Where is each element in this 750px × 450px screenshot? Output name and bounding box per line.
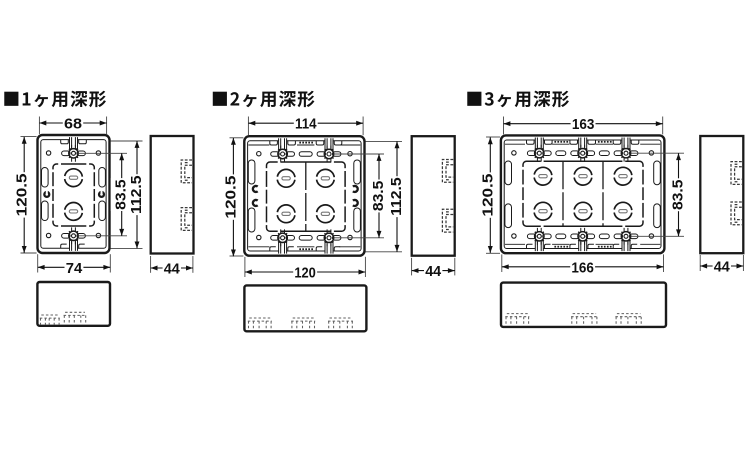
svg-text:114: 114: [295, 116, 317, 133]
svg-text:83.5: 83.5: [370, 180, 387, 211]
svg-text:120.5: 120.5: [223, 175, 240, 219]
svg-text:83.5: 83.5: [670, 179, 687, 210]
svg-text:166: 166: [571, 259, 594, 276]
svg-text:44: 44: [425, 263, 442, 280]
svg-text:44: 44: [714, 259, 731, 276]
svg-text:120.5: 120.5: [479, 173, 496, 217]
svg-text:112.5: 112.5: [128, 175, 145, 214]
svg-text:112.5: 112.5: [388, 177, 405, 216]
svg-text:120.5: 120.5: [13, 173, 30, 217]
svg-text:68: 68: [64, 116, 82, 133]
svg-text:163: 163: [572, 116, 595, 133]
svg-text:44: 44: [164, 261, 181, 278]
svg-text:74: 74: [66, 260, 83, 277]
svg-text:120: 120: [294, 265, 316, 282]
